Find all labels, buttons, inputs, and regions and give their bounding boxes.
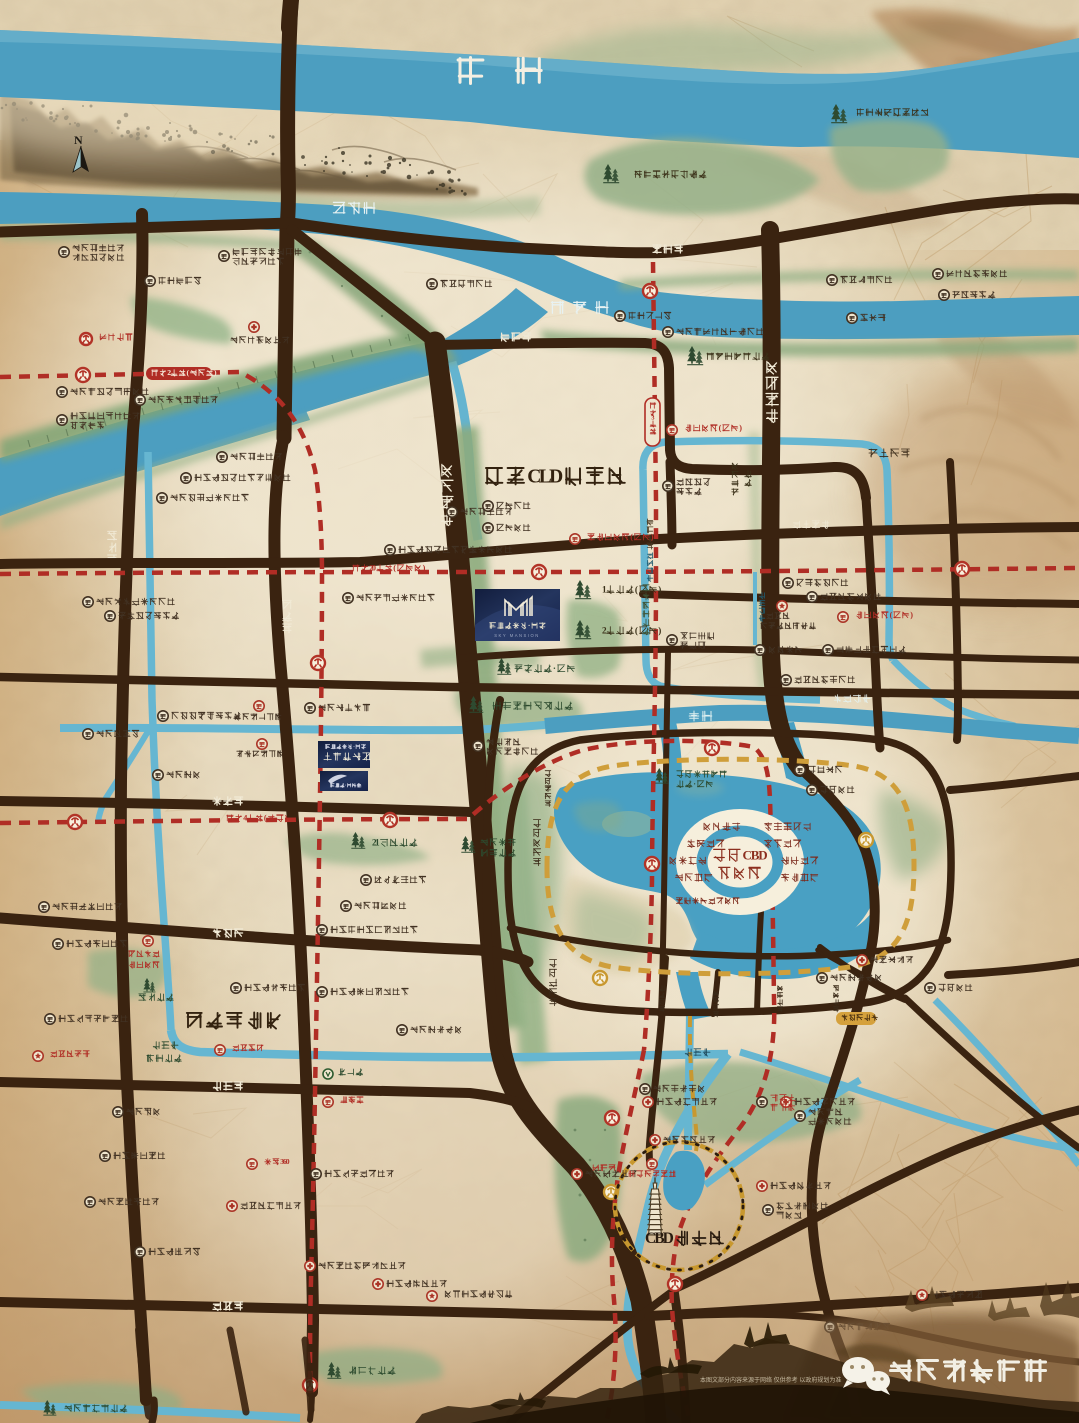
- svg-text:): ): [658, 584, 661, 594]
- svg-text:(: (: [393, 564, 396, 573]
- svg-text:·: ·: [353, 744, 355, 750]
- svg-text:): ): [651, 533, 654, 542]
- svg-text:20: 20: [369, 564, 376, 573]
- svg-text:(: (: [719, 424, 722, 433]
- svg-text:(: (: [264, 814, 267, 823]
- svg-text:本图文部分内容来源于网络 仅供参考 以政府规划为准: 本图文部分内容来源于网络 仅供参考 以政府规划为准: [700, 1376, 841, 1384]
- svg-text:): ): [658, 625, 661, 635]
- svg-text:3: 3: [651, 415, 654, 422]
- svg-text:·: ·: [693, 780, 696, 789]
- svg-text:(: (: [635, 584, 638, 594]
- svg-text:): ): [214, 368, 217, 377]
- svg-text:): ): [910, 611, 913, 620]
- svg-text:CBD: CBD: [743, 848, 768, 863]
- svg-text:4: 4: [243, 814, 247, 823]
- svg-text:1: 1: [602, 584, 607, 594]
- svg-text:(: (: [187, 368, 190, 377]
- svg-text:N: N: [74, 133, 83, 147]
- svg-text:(: (: [635, 625, 638, 635]
- svg-text:SKY MANSION: SKY MANSION: [494, 633, 540, 638]
- svg-text:·: ·: [553, 663, 556, 673]
- svg-text:CLD: CLD: [527, 466, 563, 487]
- svg-text:2: 2: [167, 368, 171, 377]
- svg-text:): ): [423, 564, 426, 573]
- svg-text:(: (: [890, 611, 893, 620]
- svg-text:2: 2: [602, 625, 607, 635]
- svg-text:21: 21: [372, 837, 380, 847]
- svg-text:CBD: CBD: [645, 1230, 674, 1247]
- svg-text:·: ·: [528, 621, 530, 630]
- svg-text:(: (: [630, 533, 633, 542]
- svg-text:): ): [285, 814, 288, 823]
- svg-text:): ): [739, 424, 742, 433]
- svg-text:360: 360: [280, 1157, 290, 1166]
